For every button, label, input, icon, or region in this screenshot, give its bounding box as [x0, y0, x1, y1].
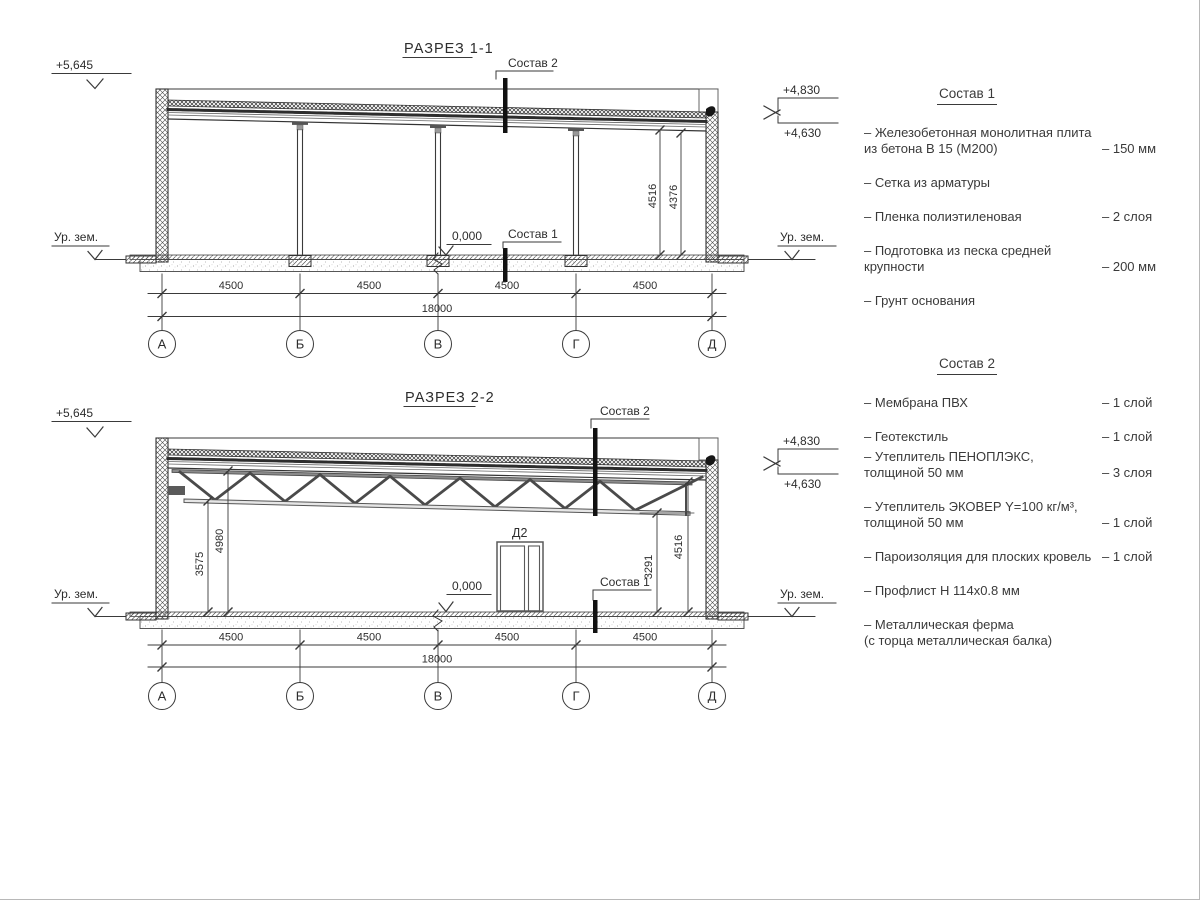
floor-slab — [126, 610, 748, 631]
spec-item-name: – Мембрана ПВХ — [864, 395, 1102, 411]
vertical-dims: 4516 4376 — [647, 126, 685, 259]
door-label: Д2 — [512, 526, 527, 540]
sostav2-marker: Состав 2 — [496, 56, 558, 133]
spec-item-name: – Профлист Н 114х0.8 мм — [864, 583, 1102, 599]
footing — [565, 256, 587, 267]
bottom-dims: 4500 4500 4500 4500 18000 — [148, 630, 726, 683]
spec-item-value: – 1 слой — [1102, 549, 1166, 565]
svg-text:4500: 4500 — [495, 280, 519, 292]
spec2-title: Состав 2 — [864, 356, 1070, 375]
spec-sostav-1: Состав 1 – Железобетонная монолитная пли… — [864, 86, 1166, 327]
axis-bubbles: А Б В Г Д — [149, 683, 726, 710]
svg-text:Б: Б — [296, 689, 305, 704]
spec-item: – Сетка из арматуры — [864, 175, 1166, 191]
column — [568, 128, 584, 255]
svg-text:18000: 18000 — [422, 303, 453, 315]
svg-text:4500: 4500 — [633, 632, 657, 644]
spec-item-name: – Грунт основания — [864, 293, 1102, 309]
right-wall — [706, 112, 718, 262]
section2-title: РАЗРЕЗ 2-2 — [405, 390, 495, 406]
spec-item-name: – Железобетонная монолитная плита из бет… — [864, 125, 1102, 157]
spec-item: – Пароизоляция для плоских кровель – 1 с… — [864, 549, 1166, 565]
spec-item-value: – 3 слоя — [1102, 465, 1166, 481]
column — [292, 122, 308, 255]
zero-level-mark: 0,000 — [439, 229, 491, 255]
spec-item-value: – 200 мм — [1102, 259, 1166, 275]
svg-text:4500: 4500 — [357, 632, 381, 644]
ground-level-right: Ур. зем. — [748, 230, 836, 260]
spec-item-name: – Металлическая ферма (с торца металличе… — [864, 617, 1102, 649]
floor-slab — [126, 253, 748, 274]
spec-item: – Мембрана ПВХ – 1 слой — [864, 395, 1166, 411]
drawing-sheet: РАЗРЕЗ 1-1 — [0, 0, 1200, 900]
svg-text:4980: 4980 — [214, 529, 226, 553]
svg-text:В: В — [434, 337, 443, 352]
svg-text:Ур. зем.: Ур. зем. — [54, 230, 98, 244]
spec-sostav-2: Состав 2 – Мембрана ПВХ – 1 слой – Геоте… — [864, 356, 1166, 667]
column — [430, 125, 446, 255]
spec-item-name: – Пароизоляция для плоских кровель — [864, 549, 1102, 565]
svg-text:+4,630: +4,630 — [784, 477, 821, 491]
svg-text:4516: 4516 — [647, 184, 659, 208]
footing — [427, 256, 449, 267]
svg-text:3291: 3291 — [643, 555, 655, 579]
svg-text:+4,830: +4,830 — [783, 434, 820, 448]
apron-left — [126, 613, 156, 620]
spec-item-name: – Сетка из арматуры — [864, 175, 1102, 191]
steel-truss — [168, 470, 702, 516]
spec-item: – Утеплитель ЭКОВЕР Y=100 кг/м³, толщино… — [864, 499, 1166, 531]
spec1-items: – Железобетонная монолитная плита из бет… — [864, 125, 1166, 309]
svg-text:+4,630: +4,630 — [784, 126, 821, 140]
svg-text:0,000: 0,000 — [452, 229, 482, 243]
svg-text:4500: 4500 — [633, 280, 657, 292]
truss-bottom-chord — [184, 499, 690, 515]
svg-text:4500: 4500 — [219, 632, 243, 644]
spec-item: – Подготовка из песка средней крупности … — [864, 243, 1166, 275]
spec-item-value: – 1 слой — [1102, 429, 1166, 445]
svg-text:Д: Д — [708, 337, 717, 352]
sostav2-label: Состав 2 — [600, 404, 650, 418]
svg-text:4376: 4376 — [668, 185, 680, 209]
section-2-drawing: РАЗРЕЗ 2-2 Д2 — [52, 390, 838, 710]
apron-right — [718, 613, 748, 620]
section1-title: РАЗРЕЗ 1-1 — [404, 41, 494, 57]
ground-level-left: Ур. зем. — [52, 230, 126, 260]
bottom-dims: 4500 4500 4500 4500 18000 — [148, 274, 726, 331]
svg-text:В: В — [434, 689, 443, 704]
svg-text:4516: 4516 — [673, 535, 685, 559]
spec-item-value: – 150 мм — [1102, 141, 1166, 157]
level-left: +5,645 — [52, 58, 131, 89]
svg-text:+5,645: +5,645 — [56, 406, 93, 420]
zero-level-mark: 0,000 — [439, 579, 491, 612]
spec1-title: Состав 1 — [864, 86, 1070, 105]
spec-item: – Геотекстиль – 1 слой — [864, 429, 1166, 445]
spec-item: – Грунт основания — [864, 293, 1166, 309]
spec-item-value: – 2 слоя — [1102, 209, 1166, 225]
svg-text:Ур. зем.: Ур. зем. — [780, 230, 824, 244]
spec-item-name: – Пленка полиэтиленовая — [864, 209, 1102, 225]
svg-text:Б: Б — [296, 337, 305, 352]
svg-text:4500: 4500 — [357, 280, 381, 292]
ground-level-right: Ур. зем. — [748, 587, 836, 617]
spec-item: – Утеплитель ПЕНОПЛЭКС, толщиной 50 мм –… — [864, 449, 1166, 481]
level-left: +5,645 — [52, 406, 131, 437]
section-1-drawing: РАЗРЕЗ 1-1 — [52, 41, 838, 358]
spec-item: – Пленка полиэтиленовая – 2 слоя — [864, 209, 1166, 225]
svg-text:Г: Г — [572, 689, 579, 704]
svg-text:Ур. зем.: Ур. зем. — [54, 587, 98, 601]
axis-bubbles: А Б В Г Д — [149, 331, 726, 358]
roof-layers — [168, 449, 715, 480]
svg-text:Ур. зем.: Ур. зем. — [780, 587, 824, 601]
sostav1-label: Состав 1 — [508, 227, 558, 241]
spec2-items: – Мембрана ПВХ – 1 слой – Геотекстиль – … — [864, 395, 1166, 649]
apron-right — [718, 256, 748, 263]
svg-text:Г: Г — [572, 337, 579, 352]
svg-text:3575: 3575 — [194, 552, 206, 576]
svg-text:+4,830: +4,830 — [783, 83, 820, 97]
spec-item-value: – 1 слой — [1102, 515, 1166, 531]
door-d2: Д2 — [497, 526, 543, 611]
level-right-pair: +4,830 +4,630 — [764, 83, 838, 140]
spec-item-name: – Утеплитель ЭКОВЕР Y=100 кг/м³, толщино… — [864, 499, 1102, 531]
spec-item-name: – Утеплитель ПЕНОПЛЭКС, толщиной 50 мм — [864, 449, 1102, 481]
level-right-pair: +4,830 +4,630 — [764, 434, 838, 491]
spec-item: – Железобетонная монолитная плита из бет… — [864, 125, 1166, 157]
spec-item: – Профлист Н 114х0.8 мм — [864, 583, 1166, 599]
svg-text:А: А — [158, 689, 167, 704]
ground-level-left: Ур. зем. — [52, 587, 126, 617]
spec-item-value: – 1 слой — [1102, 395, 1166, 411]
spec-item-name: – Подготовка из песка средней крупности — [864, 243, 1102, 275]
svg-text:18000: 18000 — [422, 654, 453, 666]
footing — [289, 256, 311, 267]
spec-item-name: – Геотекстиль — [864, 429, 1102, 445]
sostav2-label: Состав 2 — [508, 56, 558, 70]
left-wall — [156, 438, 168, 619]
svg-text:4500: 4500 — [495, 632, 519, 644]
right-wall — [706, 460, 718, 619]
svg-text:0,000: 0,000 — [452, 579, 482, 593]
svg-text:А: А — [158, 337, 167, 352]
left-wall — [156, 89, 168, 262]
truss-bearing-left — [168, 486, 185, 495]
sostav1-marker: Состав 1 — [503, 227, 561, 282]
apron-left — [126, 256, 156, 263]
svg-text:Д: Д — [708, 689, 717, 704]
svg-text:+5,645: +5,645 — [56, 58, 93, 72]
spec-item: – Металлическая ферма (с торца металличе… — [864, 617, 1166, 649]
svg-text:4500: 4500 — [219, 280, 243, 292]
